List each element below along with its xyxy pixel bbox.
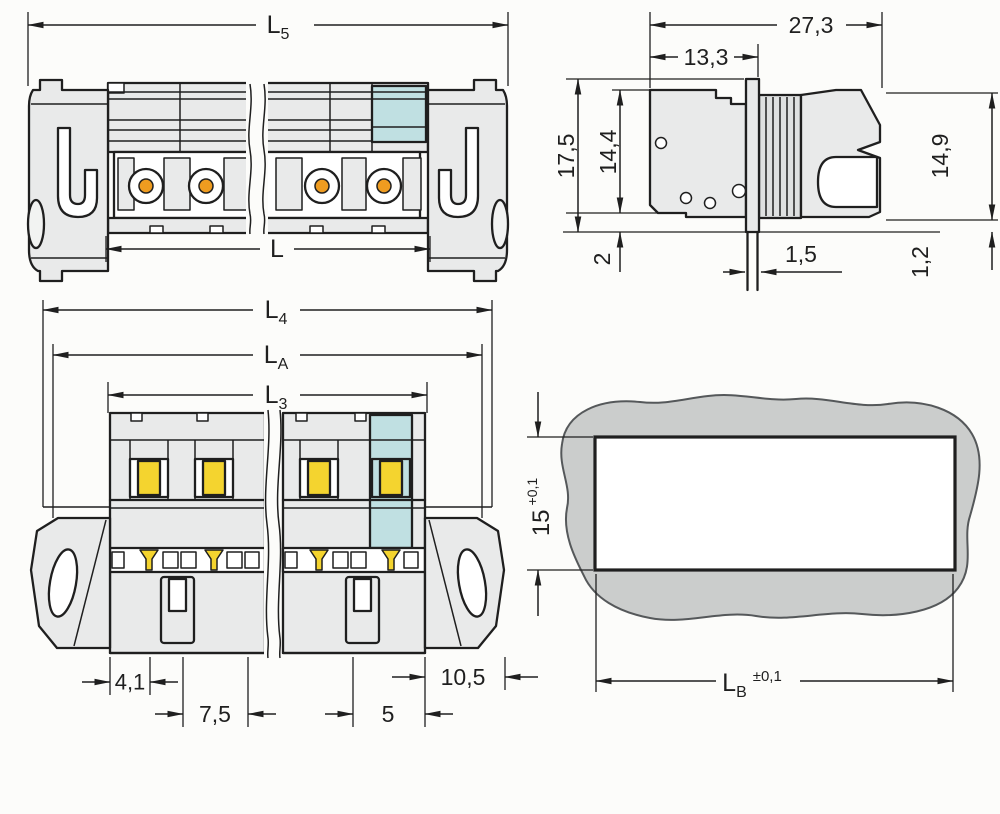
latch-right-side	[428, 80, 508, 281]
mounting-claw-right	[425, 300, 504, 648]
coding-section-side	[372, 86, 426, 142]
connector-body-left-half	[108, 83, 252, 233]
dim-27-3: 27,3	[650, 12, 882, 38]
dim-14-4-label: 14,4	[595, 129, 621, 174]
dim-1-2: 1,2	[907, 232, 992, 278]
break-lines-top	[264, 408, 281, 658]
dim-L-label: L	[270, 235, 284, 263]
dim-17-5-label: 17,5	[553, 134, 579, 179]
dim-1-5: 1,5	[723, 241, 842, 272]
dim-13-3-label: 13,3	[684, 44, 729, 70]
mounting-hole	[733, 185, 746, 198]
dim-7-5-label: 7,5	[199, 701, 231, 727]
dim-L5: L5	[28, 11, 508, 86]
plug-body	[801, 90, 880, 217]
dim-LA: LA	[53, 341, 482, 373]
dim-17-5: 17,5	[553, 79, 579, 232]
dim-13-3: 13,3	[650, 44, 758, 70]
dim-L4: L4	[43, 296, 492, 328]
dim-1-2-label: 1,2	[907, 246, 933, 278]
dim-15-label: 15+0,1	[524, 478, 555, 537]
dim-1-5-label: 1,5	[785, 241, 817, 267]
dim-5: 5	[325, 657, 453, 727]
cutout-rect	[595, 437, 955, 570]
screw-contact-center	[315, 179, 329, 193]
latch-left-side	[28, 80, 108, 281]
top-view-left-half	[110, 413, 265, 653]
technical-drawing-canvas: L5 L	[0, 0, 1000, 814]
screw-tab	[169, 579, 186, 611]
dim-7-5: 7,5	[155, 657, 276, 727]
mounting-plate	[650, 90, 746, 217]
end-view: 27,3 13,3 17,5 14,4 14,9 2	[553, 12, 998, 290]
dim-5-label: 5	[382, 701, 395, 727]
top-view-right-half	[283, 413, 425, 653]
panel-flange	[746, 79, 759, 290]
screw-contact-center	[139, 179, 153, 193]
screw-contact-center	[377, 179, 391, 193]
dim-L3: L3	[108, 381, 427, 413]
dim-10-5: 10,5	[392, 657, 538, 690]
mounting-hole	[705, 198, 716, 209]
dim-27-3-label: 27,3	[789, 12, 834, 38]
plug-cavity	[818, 157, 877, 207]
side-view: L5 L	[28, 11, 508, 281]
dim-10-5-label: 10,5	[441, 664, 486, 690]
dim-L: L	[106, 235, 430, 263]
pole-contact	[203, 461, 225, 495]
dim-L4-label: L4	[265, 296, 288, 328]
top-view: L4 LA L3 4,1 7,5	[31, 296, 538, 727]
ribbed-section	[759, 95, 801, 218]
dim-14-9-label: 14,9	[927, 134, 953, 179]
mounting-hole	[681, 193, 692, 204]
dim-L3-label: L3	[265, 381, 288, 413]
drawing-page: L5 L	[0, 0, 1000, 814]
dim-LB-label: LB±0,1	[722, 668, 782, 701]
dim-14-9: 14,9	[927, 93, 992, 220]
break-lines-side	[246, 80, 268, 236]
dim-4-1-label: 4,1	[115, 670, 146, 695]
mounting-hole	[656, 138, 667, 149]
panel-cutout-view: 15+0,1 LB±0,1	[524, 392, 980, 701]
pole-contact	[308, 461, 330, 495]
dim-4-1: 4,1	[82, 657, 178, 695]
pole-contact	[380, 461, 402, 495]
dim-2-label: 2	[589, 253, 615, 266]
dim-L5-label: L5	[267, 11, 290, 43]
dim-LA-label: LA	[264, 341, 289, 373]
screw-contact-center	[199, 179, 213, 193]
dim-2: 2	[589, 232, 620, 272]
dim-14-4: 14,4	[595, 90, 621, 213]
screw-tab	[354, 579, 371, 611]
mounting-claw-left	[31, 300, 110, 648]
pole-contact	[138, 461, 160, 495]
connector-body-right-half	[262, 83, 428, 233]
